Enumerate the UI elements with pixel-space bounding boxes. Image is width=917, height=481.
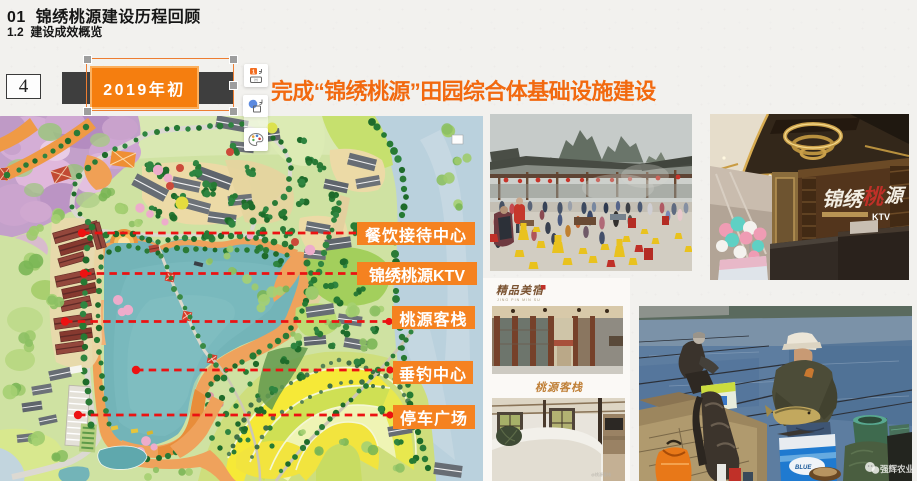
svg-text:H: H xyxy=(254,78,257,83)
svg-text:1: 1 xyxy=(252,70,255,76)
